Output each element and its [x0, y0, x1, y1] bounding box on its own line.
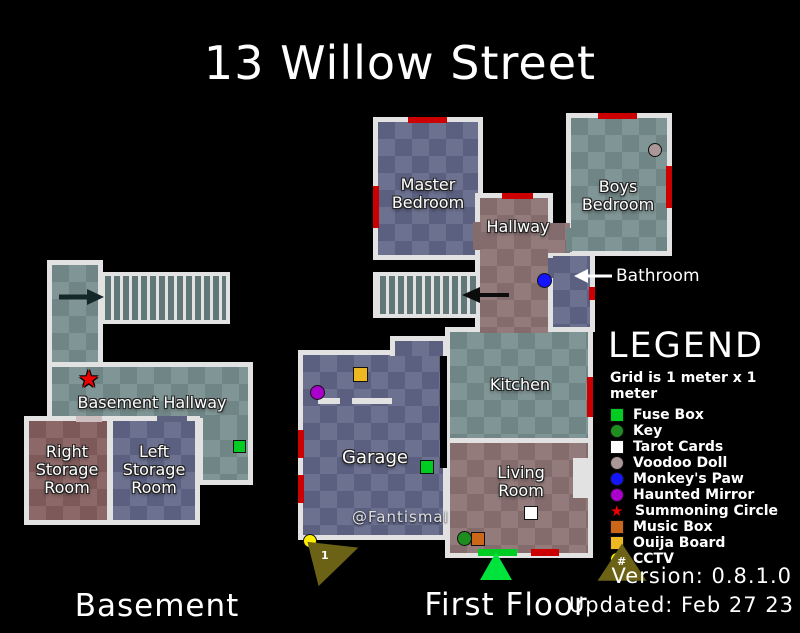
basement-stairs: [98, 272, 230, 324]
boys-right-door: [666, 166, 672, 208]
master-bedroom-label: Master Bedroom: [382, 176, 474, 212]
kitchen-right-door: [587, 377, 593, 417]
fuse-box-icon: [420, 460, 434, 474]
kitchen-label: Kitchen: [490, 376, 550, 394]
right-storage-door-gap: [76, 416, 102, 422]
fuse-box-icon: [233, 440, 246, 453]
hallway-kitchen-opening: [480, 327, 548, 333]
tarot-cards-icon: [610, 440, 624, 454]
legend-item-label: Ouija Board: [633, 535, 725, 551]
legend-item-music-box: Music Box: [610, 520, 800, 535]
legend-title: LEGEND: [608, 328, 800, 365]
boys-bedroom-label: Boys Bedroom: [578, 178, 658, 214]
legend-item-label: Tarot Cards: [633, 439, 723, 455]
left-storage-label: Left Storage Room: [118, 443, 190, 497]
legend-item-voodoo-doll: Voodoo Doll: [610, 456, 800, 471]
tarot-cards-icon: [524, 506, 538, 520]
basement-floor-title: Basement: [75, 588, 240, 624]
legend-item-label: Music Box: [633, 519, 713, 535]
garage-floor-patch: [395, 350, 443, 356]
legend-item-monkeys-paw: Monkey's Paw: [610, 472, 800, 487]
music-box-icon: [471, 532, 485, 546]
legend-item-key: Key: [610, 424, 800, 439]
legend-item-label: Fuse Box: [633, 407, 704, 423]
master-left-door: [373, 186, 379, 228]
left-storage-door-gap: [157, 416, 187, 422]
boys-door-gap: [566, 228, 572, 252]
garage-left-door: [298, 475, 304, 503]
summoning-circle-icon: ★: [78, 367, 100, 391]
first-hallway-room: [475, 193, 553, 333]
legend-item-label: Monkey's Paw: [633, 471, 744, 487]
cctv-cone-number: 1: [321, 549, 329, 562]
boys-top-door: [598, 113, 637, 119]
updated-text: Updated: Feb 27 23: [569, 593, 794, 617]
first-floor-title: First Floor: [424, 587, 587, 623]
master-top-door: [408, 117, 447, 123]
legend-item-label: Haunted Mirror: [633, 487, 754, 503]
garage-kitchen-gap: [440, 356, 447, 468]
monkeys-paw-icon: [537, 273, 552, 288]
legend-item-tarot-cards: Tarot Cards: [610, 440, 800, 455]
bathroom-label: Bathroom: [616, 266, 700, 286]
legend: LEGEND Grid is 1 meter x 1 meter Fuse Bo…: [608, 328, 800, 568]
version-text: Version: 0.8.1.0: [612, 564, 792, 588]
fuse-box-icon: [610, 408, 624, 422]
legend-item-label: Key: [633, 423, 662, 439]
garage-left-door: [298, 430, 304, 458]
basement-hallway-label: Basement Hallway: [78, 394, 227, 412]
haunted-mirror-icon: [310, 385, 325, 400]
voodoo-doll-icon: [610, 456, 624, 470]
bathroom-pointer-arrow-icon: [572, 268, 614, 284]
ouija-board-icon: [353, 367, 368, 382]
garage-label: Garage: [342, 448, 408, 468]
hallway-top-door: [502, 193, 533, 199]
legend-item-summoning-circle: ★ Summoning Circle: [610, 504, 800, 519]
basement-floor-patch: [203, 415, 248, 427]
page-title: 13 Willow Street: [204, 36, 596, 90]
key-icon: [457, 531, 472, 546]
voodoo-doll-icon: [648, 143, 662, 157]
stairs-down-arrow-icon: [458, 286, 512, 304]
living-room-label: Living Room: [486, 464, 556, 500]
stairs-up-arrow-icon: [56, 288, 106, 306]
monkeys-paw-icon: [610, 472, 624, 486]
legend-grid-note: Grid is 1 meter x 1 meter: [610, 370, 800, 402]
key-icon: [610, 424, 624, 438]
master-door-gap: [473, 222, 481, 250]
legend-item-label: Voodoo Doll: [633, 455, 727, 471]
living-room-closet: [573, 458, 588, 498]
bathroom-right-door: [589, 287, 595, 300]
map-page: 13 Willow Street ★ Basement Hallway Righ…: [0, 0, 800, 633]
living-room-bottom-door: [531, 549, 559, 556]
cctv-cone: 1: [300, 540, 362, 588]
haunted-mirror-icon: [610, 488, 624, 502]
credit-watermark: @Fantismal: [352, 508, 449, 526]
garage-inner-wall: [352, 398, 392, 404]
legend-item-ouija-board: Ouija Board: [610, 536, 800, 551]
right-storage-label: Right Storage Room: [31, 443, 103, 497]
legend-item-haunted-mirror: Haunted Mirror: [610, 488, 800, 503]
summoning-circle-icon: ★: [610, 505, 626, 517]
hallway-label: Hallway: [486, 218, 549, 236]
music-box-icon: [610, 520, 624, 534]
bathroom-room: [548, 251, 595, 332]
legend-item-fuse-box: Fuse Box: [610, 408, 800, 423]
legend-item-label: Summoning Circle: [635, 503, 778, 519]
